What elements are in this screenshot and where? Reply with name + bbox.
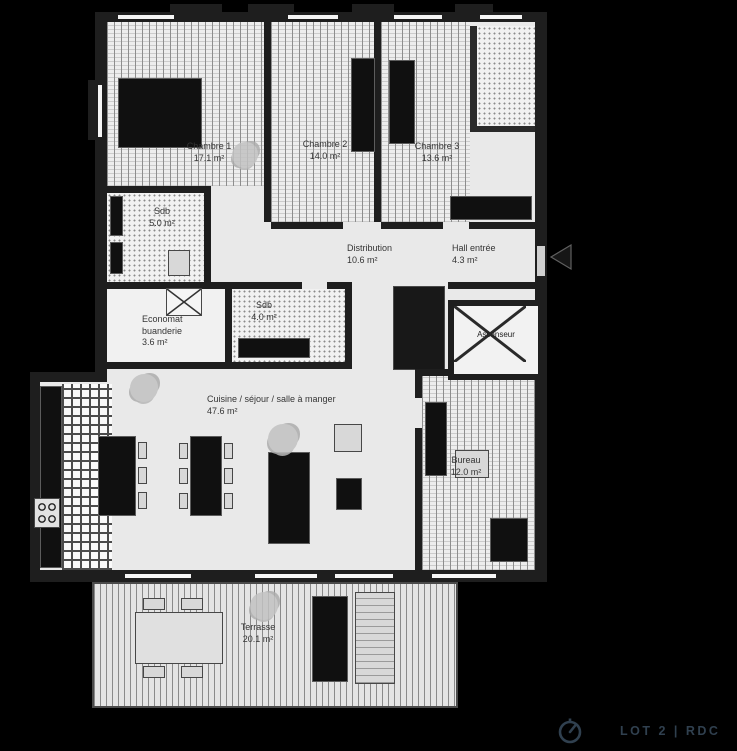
dining-chair — [224, 443, 233, 459]
room-area: 13.6 m² — [400, 153, 474, 165]
side-table — [334, 424, 362, 452]
dining-chair — [179, 493, 188, 509]
dining-table — [190, 436, 222, 516]
room-area: 14.0 m² — [288, 151, 362, 163]
window-slot — [432, 574, 496, 578]
room-label-economat: Economat buanderie 3.6 m² — [142, 314, 200, 349]
bar-stool — [138, 442, 147, 459]
room-name: Chambre 1 — [172, 141, 246, 153]
room-area: 3.6 m² — [142, 337, 200, 349]
window-sill — [248, 4, 294, 13]
room-label-sdb-1: Sdb 5.0 m² — [138, 206, 186, 229]
wall-loggia-bottom — [470, 126, 535, 132]
sdb1-toilet — [168, 250, 190, 276]
bar-stool — [138, 467, 147, 484]
room-area: 4.0 m² — [240, 312, 288, 324]
window-slot — [394, 15, 442, 19]
terrace-table — [135, 612, 223, 664]
kitchen-counter — [40, 386, 62, 568]
room-name: Distribution — [347, 243, 437, 255]
cooktop — [34, 498, 60, 528]
room-name: Terrasse — [226, 622, 290, 634]
window-sill — [352, 4, 394, 13]
room-label-distribution: Distribution 10.6 m² — [347, 243, 437, 266]
bed-chambre-1 — [118, 78, 202, 148]
wall-corridor-top-b — [381, 222, 443, 229]
bureau-cabinet — [490, 518, 528, 562]
room-area: 4.3 m² — [452, 255, 532, 267]
technical-shaft — [393, 286, 445, 370]
wall-sdb1-right — [204, 186, 211, 282]
room-name: Cuisine / séjour / salle à manger — [207, 394, 336, 406]
window-sill — [88, 80, 96, 140]
terrace-lounger — [355, 592, 395, 684]
wall-chambre2-chambre3 — [374, 22, 381, 222]
window-sill — [170, 4, 222, 13]
room-area: 10.6 m² — [347, 255, 437, 267]
room-area: 17.1 m² — [172, 153, 246, 165]
wall-sdb2-top-b — [327, 282, 345, 289]
wall-left-step — [30, 372, 107, 382]
lot-label: LOT 2 | RDC — [620, 724, 720, 738]
room-area: 47.6 m² — [207, 406, 336, 418]
room-name: Hall entrée — [452, 243, 532, 255]
entrance-arrow-icon — [549, 243, 573, 271]
window-slot — [255, 574, 317, 578]
armchair — [336, 478, 362, 510]
room-name: Sdb — [138, 206, 186, 218]
room-name: Chambre 3 — [400, 141, 474, 153]
bed-chambre-3 — [389, 60, 415, 144]
wall-right — [535, 12, 547, 582]
room-area: 12.0 m² — [435, 467, 497, 479]
hall-wardrobe — [450, 196, 532, 220]
terrace-chair — [181, 598, 203, 610]
wall-corridor-top-a — [271, 222, 343, 229]
wall-hall-bottom — [448, 282, 535, 289]
room-area: 20.1 m² — [226, 634, 290, 646]
window-sill — [455, 4, 493, 13]
terrace-chair — [143, 666, 165, 678]
elevator-shaft: Ascenseur — [448, 300, 544, 380]
room-name: Economat buanderie — [142, 314, 200, 337]
wall-sdb1-top — [107, 186, 211, 193]
sofa — [268, 452, 310, 544]
window-slot — [288, 15, 338, 19]
wall-sdb2-right — [345, 282, 352, 369]
room-name: Bureau — [435, 455, 497, 467]
wall-left-upper — [95, 12, 107, 378]
room-name: Chambre 2 — [288, 139, 362, 151]
wall-chambre1-chambre2 — [264, 22, 271, 222]
room-label-chambre-3: Chambre 3 13.6 m² — [400, 141, 474, 164]
dining-chair — [224, 468, 233, 484]
entrance-door-slot — [537, 246, 545, 276]
kitchen-island — [98, 436, 136, 516]
north-compass-icon — [556, 717, 584, 745]
sdb2-vanity — [238, 338, 310, 358]
terrace-lounge — [312, 596, 348, 682]
sdb1-shower — [110, 242, 123, 274]
floor-plan-canvas: Ascenseur — [0, 0, 737, 751]
wall-corridor-top-c — [469, 222, 535, 229]
room-label-bureau: Bureau 12.0 m² — [435, 455, 497, 478]
room-label-hall-entree: Hall entrée 4.3 m² — [452, 243, 532, 266]
wall-sdb2-top-a — [232, 282, 302, 289]
wall-economat-right — [225, 282, 232, 369]
wall-loggia-left — [470, 26, 477, 130]
dining-chair — [179, 443, 188, 459]
dining-chair — [224, 493, 233, 509]
terrace-chair — [181, 666, 203, 678]
wall-left-lower — [30, 372, 40, 582]
bed-chambre-2 — [351, 58, 375, 152]
wall-living-right-b — [415, 428, 422, 570]
room-area: 5.0 m² — [138, 218, 186, 230]
wall-living-top — [107, 362, 352, 369]
sdb1-vanity — [110, 196, 123, 236]
window-slot — [480, 15, 522, 19]
terrace-chair — [143, 598, 165, 610]
loggia-floor — [477, 26, 535, 130]
room-label-cuisine-sejour: Cuisine / séjour / salle à manger 47.6 m… — [207, 394, 336, 417]
room-name: Sdb — [240, 300, 288, 312]
cooktop-burners-icon — [35, 499, 59, 527]
washer-cross-icon — [167, 289, 201, 315]
room-label-terrasse: Terrasse 20.1 m² — [226, 622, 290, 645]
room-label-chambre-2: Chambre 2 14.0 m² — [288, 139, 362, 162]
window-slot — [118, 15, 174, 19]
window-slot — [125, 574, 191, 578]
dining-chair — [179, 468, 188, 484]
window-slot — [98, 85, 102, 137]
washing-machine — [166, 288, 202, 316]
bar-stool — [138, 492, 147, 509]
elevator-label: Ascenseur — [454, 330, 538, 339]
room-label-chambre-1: Chambre 1 17.1 m² — [172, 141, 246, 164]
room-label-sdb-2: Sdb 4.0 m² — [240, 300, 288, 323]
window-slot — [335, 574, 393, 578]
